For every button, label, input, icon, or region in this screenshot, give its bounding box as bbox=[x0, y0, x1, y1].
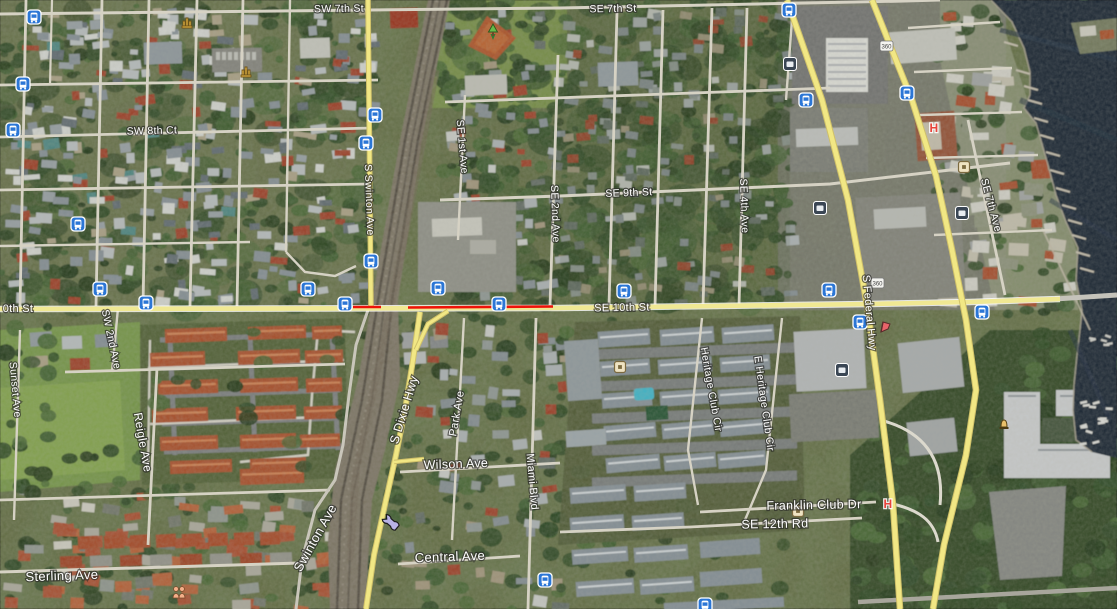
svg-text:SW 8th Ct: SW 8th Ct bbox=[126, 124, 177, 137]
svg-text:SW 7th St: SW 7th St bbox=[314, 3, 364, 16]
svg-text:360: 360 bbox=[881, 45, 892, 51]
svg-text:360: 360 bbox=[872, 282, 883, 288]
svg-text:Wilson Ave: Wilson Ave bbox=[423, 456, 488, 472]
svg-text:Franklin Club Dr: Franklin Club Dr bbox=[766, 497, 861, 513]
svg-text:Sterling Ave: Sterling Ave bbox=[25, 567, 98, 585]
svg-text:SE 10th St: SE 10th St bbox=[594, 302, 650, 315]
svg-text:SE 12th Rd: SE 12th Rd bbox=[741, 516, 808, 531]
svg-text:SE 2nd Ave: SE 2nd Ave bbox=[548, 185, 562, 243]
svg-text:S Swinton Ave: S Swinton Ave bbox=[362, 164, 376, 236]
svg-text:H: H bbox=[884, 497, 893, 511]
svg-text:SE 7th St: SE 7th St bbox=[589, 3, 636, 16]
svg-text:H: H bbox=[930, 121, 939, 135]
svg-text:SE 9th St: SE 9th St bbox=[605, 186, 652, 200]
svg-text:SE 4th Ave: SE 4th Ave bbox=[737, 178, 751, 233]
svg-text:Central Ave: Central Ave bbox=[414, 548, 485, 565]
svg-text:0th St: 0th St bbox=[3, 303, 34, 315]
